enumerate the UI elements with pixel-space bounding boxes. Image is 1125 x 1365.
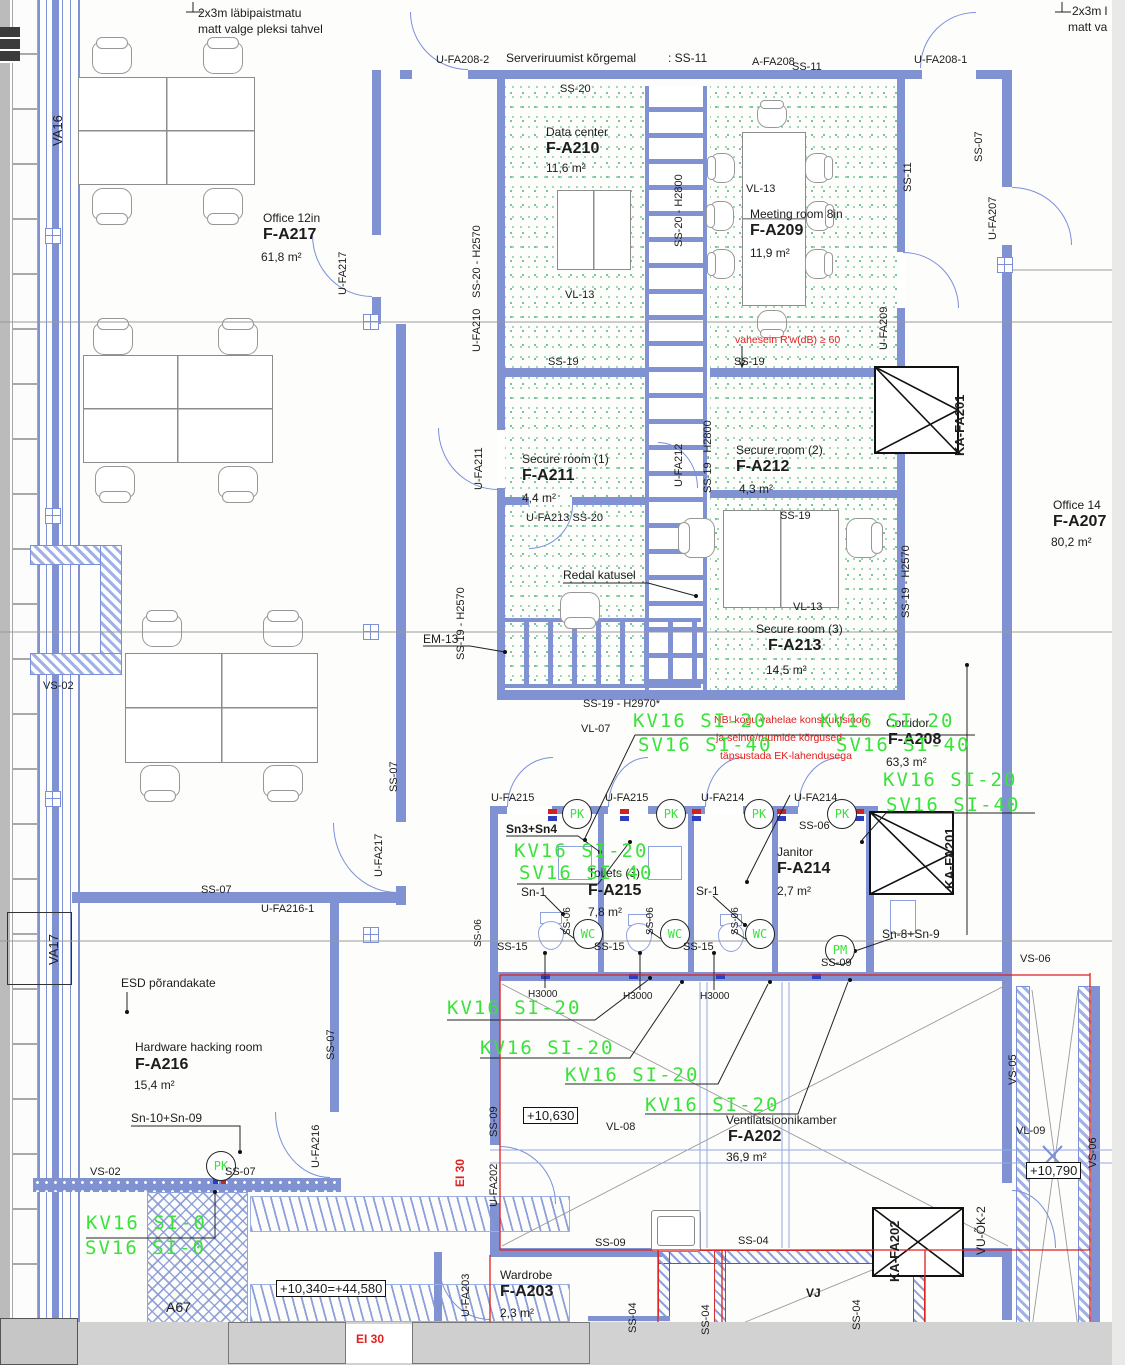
wall-code-label: SS-20 - H2800 [673, 174, 686, 247]
opening-label: KA-FA201 [943, 828, 956, 889]
chair [846, 518, 878, 558]
pk-label: PK [570, 807, 584, 821]
fire-rating-label: EI 30 [453, 1159, 466, 1187]
room-name: Secure room (1) [522, 452, 609, 466]
wc-label: WC [753, 927, 767, 941]
shaft-wall [1016, 986, 1030, 1330]
opening-label: U-FA208-2 [436, 54, 489, 66]
wall-segment [497, 690, 905, 700]
page-margin [1112, 0, 1125, 1365]
service-marker [812, 974, 821, 979]
vj-shaft-wall [658, 1250, 925, 1264]
chair [805, 249, 829, 279]
wc-label: WC [581, 927, 595, 941]
note-plexi-board: matt valge pleksi tahvel [198, 22, 323, 36]
room-code: F-A214 [777, 860, 830, 878]
wall-segment [468, 70, 922, 79]
pk-circle: PK [744, 799, 774, 829]
grid-marker [45, 228, 61, 244]
service-marker [692, 816, 701, 821]
room-area: 11,9 m² [750, 246, 790, 260]
chair [92, 188, 132, 220]
opening-label: U-FA216 [310, 1125, 323, 1168]
room-name: Janitor [777, 845, 813, 859]
chair [93, 323, 133, 355]
page-edge [0, 0, 10, 1365]
opening-label: KA-FA202 [888, 1221, 901, 1282]
pk-label: PK [835, 807, 849, 821]
wall-code-label: SS-11 [902, 162, 915, 192]
wall-code-label: VL-13 [746, 183, 775, 195]
chair [757, 310, 787, 334]
room-area: 61,8 m² [261, 250, 302, 264]
chair [683, 518, 715, 558]
green-mark-label: KV16 SI-20 [820, 712, 954, 731]
wall-code-label: VA16 [51, 115, 64, 146]
office-table [125, 653, 318, 763]
wall-segment [72, 892, 399, 903]
level-box: +10,630 [523, 1107, 578, 1124]
green-mark-label: SV16 SI-40 [519, 864, 653, 883]
room-code: F-A215 [588, 882, 641, 900]
wall-code-label: H3000 [700, 991, 729, 1002]
opening-label: U-FA209 [878, 307, 891, 350]
opening-label: U-FA212 [673, 444, 686, 487]
chair [711, 249, 735, 279]
note-esd-floor: ESD põrandakate [121, 976, 216, 990]
service-marker [548, 809, 557, 814]
wall-code-label: SS-04 [738, 1235, 769, 1247]
service-marker [541, 974, 550, 979]
opening-label: U-FA217 [373, 834, 386, 877]
opening-label: U-FA203 [460, 1274, 473, 1317]
wall-code-label: SS-07 [225, 1166, 256, 1178]
service-marker [692, 809, 701, 814]
door-gap [507, 806, 552, 814]
service-marker [777, 809, 786, 814]
wall-code-label: SS-09 [595, 1237, 626, 1249]
room-area: 14,5 m² [766, 663, 807, 677]
opening-label: A-FA208 [752, 56, 795, 68]
room-code: F-A217 [263, 226, 316, 244]
opening-label: U-FA215 [491, 792, 534, 804]
wall-code-label: VS-02 [43, 680, 74, 692]
door-gap [705, 806, 743, 814]
chair [560, 592, 600, 624]
bumpout-wall [30, 653, 122, 675]
door-arc-vu-ok-2 [1012, 1190, 1056, 1248]
wall-code-label: SS-11 [792, 61, 822, 73]
pk-circle: PK [656, 799, 686, 829]
wall-code-label: VL-13 [565, 289, 594, 301]
room-name: Wardrobe [500, 1268, 552, 1282]
shaft-label: VJ [806, 1286, 821, 1300]
wall-code-label: SS-04 [627, 1302, 640, 1333]
room-area: 2,7 m² [777, 884, 811, 898]
green-mark-label: KV16 SI-20 [447, 999, 581, 1018]
sink [651, 1210, 701, 1252]
room-code: F-A202 [728, 1128, 781, 1146]
chair [805, 153, 829, 183]
room-code: F-A211 [522, 467, 574, 485]
wall-code-label: VS-06 [1020, 953, 1051, 965]
note-roof-ladder: Redal katusel [563, 568, 636, 582]
room-code: F-A207 [1053, 513, 1106, 531]
wall-code-label: SS-19 [548, 356, 579, 368]
sanitary-label: Sn-1 [521, 885, 546, 899]
opening-label: U-FA214 [701, 792, 744, 804]
wall-segment [400, 70, 412, 79]
wall-code-label: SS-07 [325, 1029, 338, 1060]
wall-code-label: SS-20 - H2570 [471, 225, 484, 298]
opening-label: U-FA207 [987, 197, 1000, 240]
wall-code-label: VL-07 [581, 723, 610, 735]
room-code: F-A216 [135, 1056, 188, 1074]
room-name: Secure room (2) [736, 443, 823, 457]
pm-label: PM [833, 943, 847, 957]
chair [92, 42, 132, 74]
room-name: Office 12in [263, 211, 320, 225]
wall-code-label: VU-ÕK-2 [975, 1206, 988, 1255]
chair [203, 188, 243, 220]
wall-code-label: SS-09 [488, 1106, 501, 1137]
wall-code-label: SS-06 [562, 907, 575, 935]
exterior-block [0, 1318, 78, 1365]
service-marker [620, 809, 629, 814]
wall-code-label: SS-06 [473, 919, 486, 947]
wall-segment [710, 368, 905, 377]
opening-label: U-FA208-1 [914, 54, 967, 66]
room-name: Office 14 [1053, 498, 1101, 512]
door-gap [497, 430, 505, 488]
grid-marker [363, 314, 379, 330]
wall-code-label: SS-06 [645, 907, 658, 935]
wall-segment [866, 806, 874, 978]
wall-segment [396, 324, 406, 822]
wall-code-label: VA17 [47, 934, 60, 965]
green-mark-label: SV16 SI-40 [836, 736, 970, 755]
green-mark-label: KV16 SI-20 [633, 712, 767, 731]
sanitary-label: Sn3+Sn4 [506, 822, 557, 836]
wall-code-label: SS-19 [780, 510, 811, 522]
wall-segment [1002, 1248, 1012, 1320]
wall-code-label: SS-15 [594, 941, 625, 953]
room-code: F-A212 [736, 458, 789, 476]
vj-shaft-wall [714, 1250, 726, 1332]
room-area: 63,3 m² [886, 755, 927, 769]
wall-code-label: SS-19 [734, 356, 765, 368]
office-table [83, 355, 273, 463]
chair [218, 323, 258, 355]
wall-code-label: H3000 [623, 991, 652, 1002]
wall-segment [490, 1248, 662, 1257]
note-partition-acoustic: vahesein R'w(dB) ≥ 60 [735, 334, 840, 346]
chair [140, 765, 180, 797]
wall-code-label: SS-06 [730, 907, 743, 935]
sanitary-label: Sn-8+Sn-9 [882, 927, 940, 941]
wall-code-label: SS-06 [799, 820, 830, 832]
wall-code-label: SS-15 [497, 941, 528, 953]
room-name: Data center [546, 125, 608, 139]
green-mark-label: KV16 SI-0 [86, 1214, 207, 1233]
opening-label: U-FA202 [488, 1164, 501, 1207]
wall-code-label: VL-13 [793, 601, 822, 613]
office-table [78, 77, 255, 185]
note-server-room: Serveriruumist kõrgemal [506, 51, 636, 65]
green-mark-label: KV16 SI-20 [883, 771, 1017, 790]
chair [142, 615, 182, 647]
wall-code-label: SS-07 [201, 884, 232, 896]
chair [710, 201, 734, 231]
exterior-block [228, 1322, 346, 1364]
exterior-block [412, 1322, 590, 1364]
door-arc-u-fa216-1 [333, 823, 397, 893]
server-cabinet [557, 190, 631, 270]
wall-segment [572, 497, 647, 505]
section-mark [0, 27, 20, 63]
wall-code-label: SS-07 [973, 131, 986, 162]
service-marker [548, 816, 557, 821]
wall-segment [330, 903, 339, 1112]
note-plexi-board-right: matt va [1068, 20, 1107, 34]
note-plexi-board: 2x3m läbipaistmatu [198, 6, 301, 20]
wc-circle: WC [745, 919, 775, 949]
sanitary-label: Sr-1 [696, 884, 719, 898]
level-box: +10,340=+44,580 [276, 1280, 386, 1297]
green-mark-label: KV16 SI-20 [514, 842, 648, 861]
room-code: F-A209 [750, 222, 803, 240]
opening-label: U-FA211 [473, 447, 486, 490]
service-marker [620, 816, 629, 821]
note-plexi-board-right: 2x3m l [1072, 4, 1107, 18]
vj-shaft-wall [913, 1250, 925, 1332]
wall-segment [920, 1248, 1010, 1257]
wall-code-label: SS-07 [388, 761, 401, 792]
fire-rating-label: EI 30 [356, 1332, 384, 1346]
opening-label: U-FA214 [794, 792, 837, 804]
sanitary-label: Sn-10+Sn-09 [131, 1111, 202, 1125]
door-arc-u-fa211 [438, 428, 498, 490]
chair [711, 153, 735, 183]
opening-label: U-FA216-1 [261, 903, 314, 915]
wall-code-label: SS-19 - H2570 [900, 545, 913, 618]
opening-label: KA-FA201 [953, 395, 966, 456]
room-area: 15,4 m² [134, 1078, 175, 1092]
chair [218, 466, 258, 498]
wall-segment [1002, 245, 1012, 1183]
wall-code-label: SS-09 [821, 957, 852, 969]
green-mark-label: KV16 SI-20 [565, 1066, 699, 1085]
wall-code-label: VL-08 [606, 1121, 635, 1133]
room-name: Meeting room 8in [750, 207, 843, 221]
chair [757, 104, 787, 128]
door-arc-u-fa202 [500, 1146, 556, 1204]
wall-segment [497, 78, 505, 699]
wall-code-label: A67 [166, 1299, 191, 1315]
green-mark-label: SV16 SI-0 [85, 1239, 206, 1258]
room-name: Secure room (3) [756, 622, 843, 636]
room-area: 4,4 m² [522, 491, 556, 505]
service-marker [629, 974, 638, 979]
wall-code-label: SS-19 - H2970* [583, 698, 660, 710]
wall-segment [1002, 70, 1012, 187]
wc-label: WC [668, 927, 682, 941]
toilet [538, 912, 564, 950]
secure-room-desk [723, 510, 839, 608]
grid-marker [997, 257, 1013, 273]
floor-plan: PK PK PK PK WC WC WC PM PK 2x3m läbipais… [0, 0, 1125, 1365]
wall-code-label: SS-19 - H2570 [455, 587, 468, 660]
grid-marker [45, 791, 61, 807]
level-box: +10,790 [1026, 1162, 1081, 1179]
room-area: 11,6 m² [546, 161, 586, 175]
opening-label: U-FA215 [605, 792, 648, 804]
opening-label: U-FA213 SS-20 [526, 512, 603, 524]
wall-code-label: SS-20 [560, 83, 591, 95]
chair [263, 765, 303, 797]
room-area: 36,9 m² [726, 1150, 767, 1164]
service-marker [777, 816, 786, 821]
shaft-va17-outline [7, 912, 72, 985]
grid-marker [45, 508, 61, 524]
service-marker [716, 974, 725, 979]
room-area: 2,3 m² [500, 1306, 534, 1320]
room-code: F-A203 [500, 1283, 553, 1301]
stair-element [505, 618, 701, 688]
opening-label: U-FA217 [337, 252, 350, 295]
wall-code-label: SS-04 [851, 1299, 864, 1330]
wall-code-label: VS-02 [90, 1166, 121, 1178]
wall-code-label: EM-13 [423, 632, 458, 646]
pk-label: PK [752, 807, 766, 821]
green-mark-label: SV16 SI-40 [638, 736, 772, 755]
wall-code-label: VS-06 [1087, 1137, 1100, 1168]
pk-label: PK [664, 807, 678, 821]
chair [263, 615, 303, 647]
wall-segment [33, 1178, 341, 1192]
green-mark-label: KV16 SI-20 [480, 1039, 614, 1058]
wall-code-label: SS-04 [700, 1304, 713, 1335]
green-mark-label: KV16 SI-20 [645, 1096, 779, 1115]
wall-code-label: VL-09 [1016, 1125, 1045, 1137]
room-code: F-A210 [546, 140, 599, 158]
door-arc-u-fa209 [903, 252, 959, 308]
grid-marker [363, 624, 379, 640]
room-code: F-A213 [768, 637, 821, 655]
door-arc-u-fa207 [1012, 187, 1072, 245]
note-server-room-code: : SS-11 [668, 51, 707, 65]
wall-code-label: VS-05 [1007, 1054, 1020, 1085]
chair [203, 42, 243, 74]
opening-label: U-FA210 [471, 309, 484, 352]
wall-code-label: SS-15 [683, 941, 714, 953]
room-area: 7,8 m² [588, 905, 622, 919]
wall-code-label: SS-19 - H2800 [702, 420, 715, 493]
wall-segment [497, 368, 647, 377]
wall-segment [372, 70, 381, 235]
pk-circle: PK [562, 799, 592, 829]
wall-segment [490, 972, 1010, 981]
green-mark-label: SV16 SI-40 [886, 796, 1020, 815]
room-area: 80,2 m² [1051, 535, 1092, 549]
chair [95, 466, 135, 498]
room-name: Hardware hacking room [135, 1040, 262, 1054]
grid-marker [363, 927, 379, 943]
room-area: 4,3 m² [739, 482, 773, 496]
